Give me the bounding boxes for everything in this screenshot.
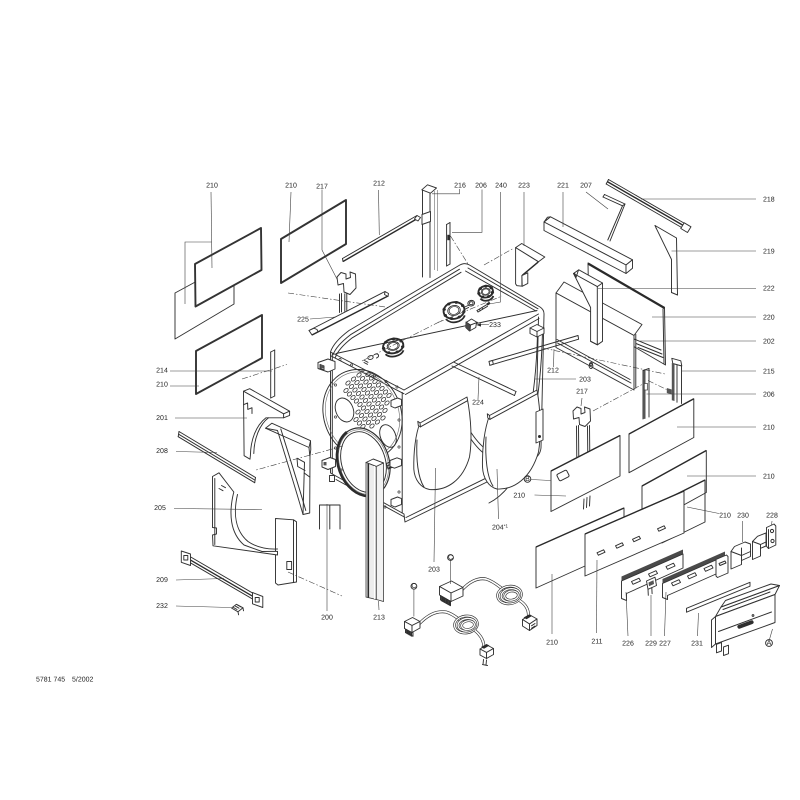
svg-text:217: 217 xyxy=(576,389,588,396)
svg-text:225: 225 xyxy=(297,317,309,324)
svg-text:231: 231 xyxy=(691,641,703,648)
svg-text:210: 210 xyxy=(513,493,525,500)
svg-text:213: 213 xyxy=(373,615,385,622)
svg-text:212: 212 xyxy=(373,181,385,188)
svg-text:210: 210 xyxy=(156,382,168,389)
svg-text:207: 207 xyxy=(580,183,592,190)
svg-text:210: 210 xyxy=(719,513,731,520)
svg-text:206: 206 xyxy=(475,183,487,190)
svg-text:222: 222 xyxy=(763,286,775,293)
svg-text:209: 209 xyxy=(156,577,168,584)
svg-text:202: 202 xyxy=(763,339,775,346)
svg-text:B: B xyxy=(525,476,530,483)
svg-text:210: 210 xyxy=(285,183,297,190)
svg-text:216: 216 xyxy=(454,183,466,190)
svg-text:5/2002: 5/2002 xyxy=(72,676,94,684)
svg-text:224: 224 xyxy=(472,400,484,407)
svg-text:210: 210 xyxy=(763,425,775,432)
svg-text:223: 223 xyxy=(518,183,530,190)
svg-text:200: 200 xyxy=(321,615,333,622)
svg-text:210: 210 xyxy=(206,183,218,190)
svg-text:221: 221 xyxy=(557,183,569,190)
svg-text:219: 219 xyxy=(763,249,775,256)
svg-text:201: 201 xyxy=(156,415,168,422)
svg-text:210: 210 xyxy=(763,474,775,481)
svg-text:218: 218 xyxy=(763,197,775,204)
svg-text:228: 228 xyxy=(766,513,778,520)
svg-text:C: C xyxy=(448,554,453,561)
svg-text:220: 220 xyxy=(763,315,775,322)
svg-text:203: 203 xyxy=(579,377,591,384)
svg-text:211: 211 xyxy=(591,639,602,646)
svg-text:227: 227 xyxy=(659,641,671,648)
svg-text:217: 217 xyxy=(316,184,328,191)
svg-text:214: 214 xyxy=(156,368,168,375)
svg-text:226: 226 xyxy=(622,641,634,648)
svg-text:229: 229 xyxy=(645,641,657,648)
svg-text:230: 230 xyxy=(737,513,749,520)
svg-text:215: 215 xyxy=(763,369,775,376)
svg-text:210: 210 xyxy=(546,640,558,647)
svg-text:232: 232 xyxy=(156,603,168,610)
svg-text:5781 745: 5781 745 xyxy=(36,677,65,684)
svg-text:C: C xyxy=(411,583,416,590)
svg-text:208: 208 xyxy=(156,448,168,455)
svg-text:203: 203 xyxy=(428,567,440,574)
svg-text:212: 212 xyxy=(547,368,559,375)
svg-text:205: 205 xyxy=(154,505,166,512)
svg-text:206: 206 xyxy=(763,392,775,399)
svg-text:233: 233 xyxy=(489,322,501,329)
svg-text:A: A xyxy=(767,640,772,647)
svg-text:240: 240 xyxy=(495,183,507,190)
